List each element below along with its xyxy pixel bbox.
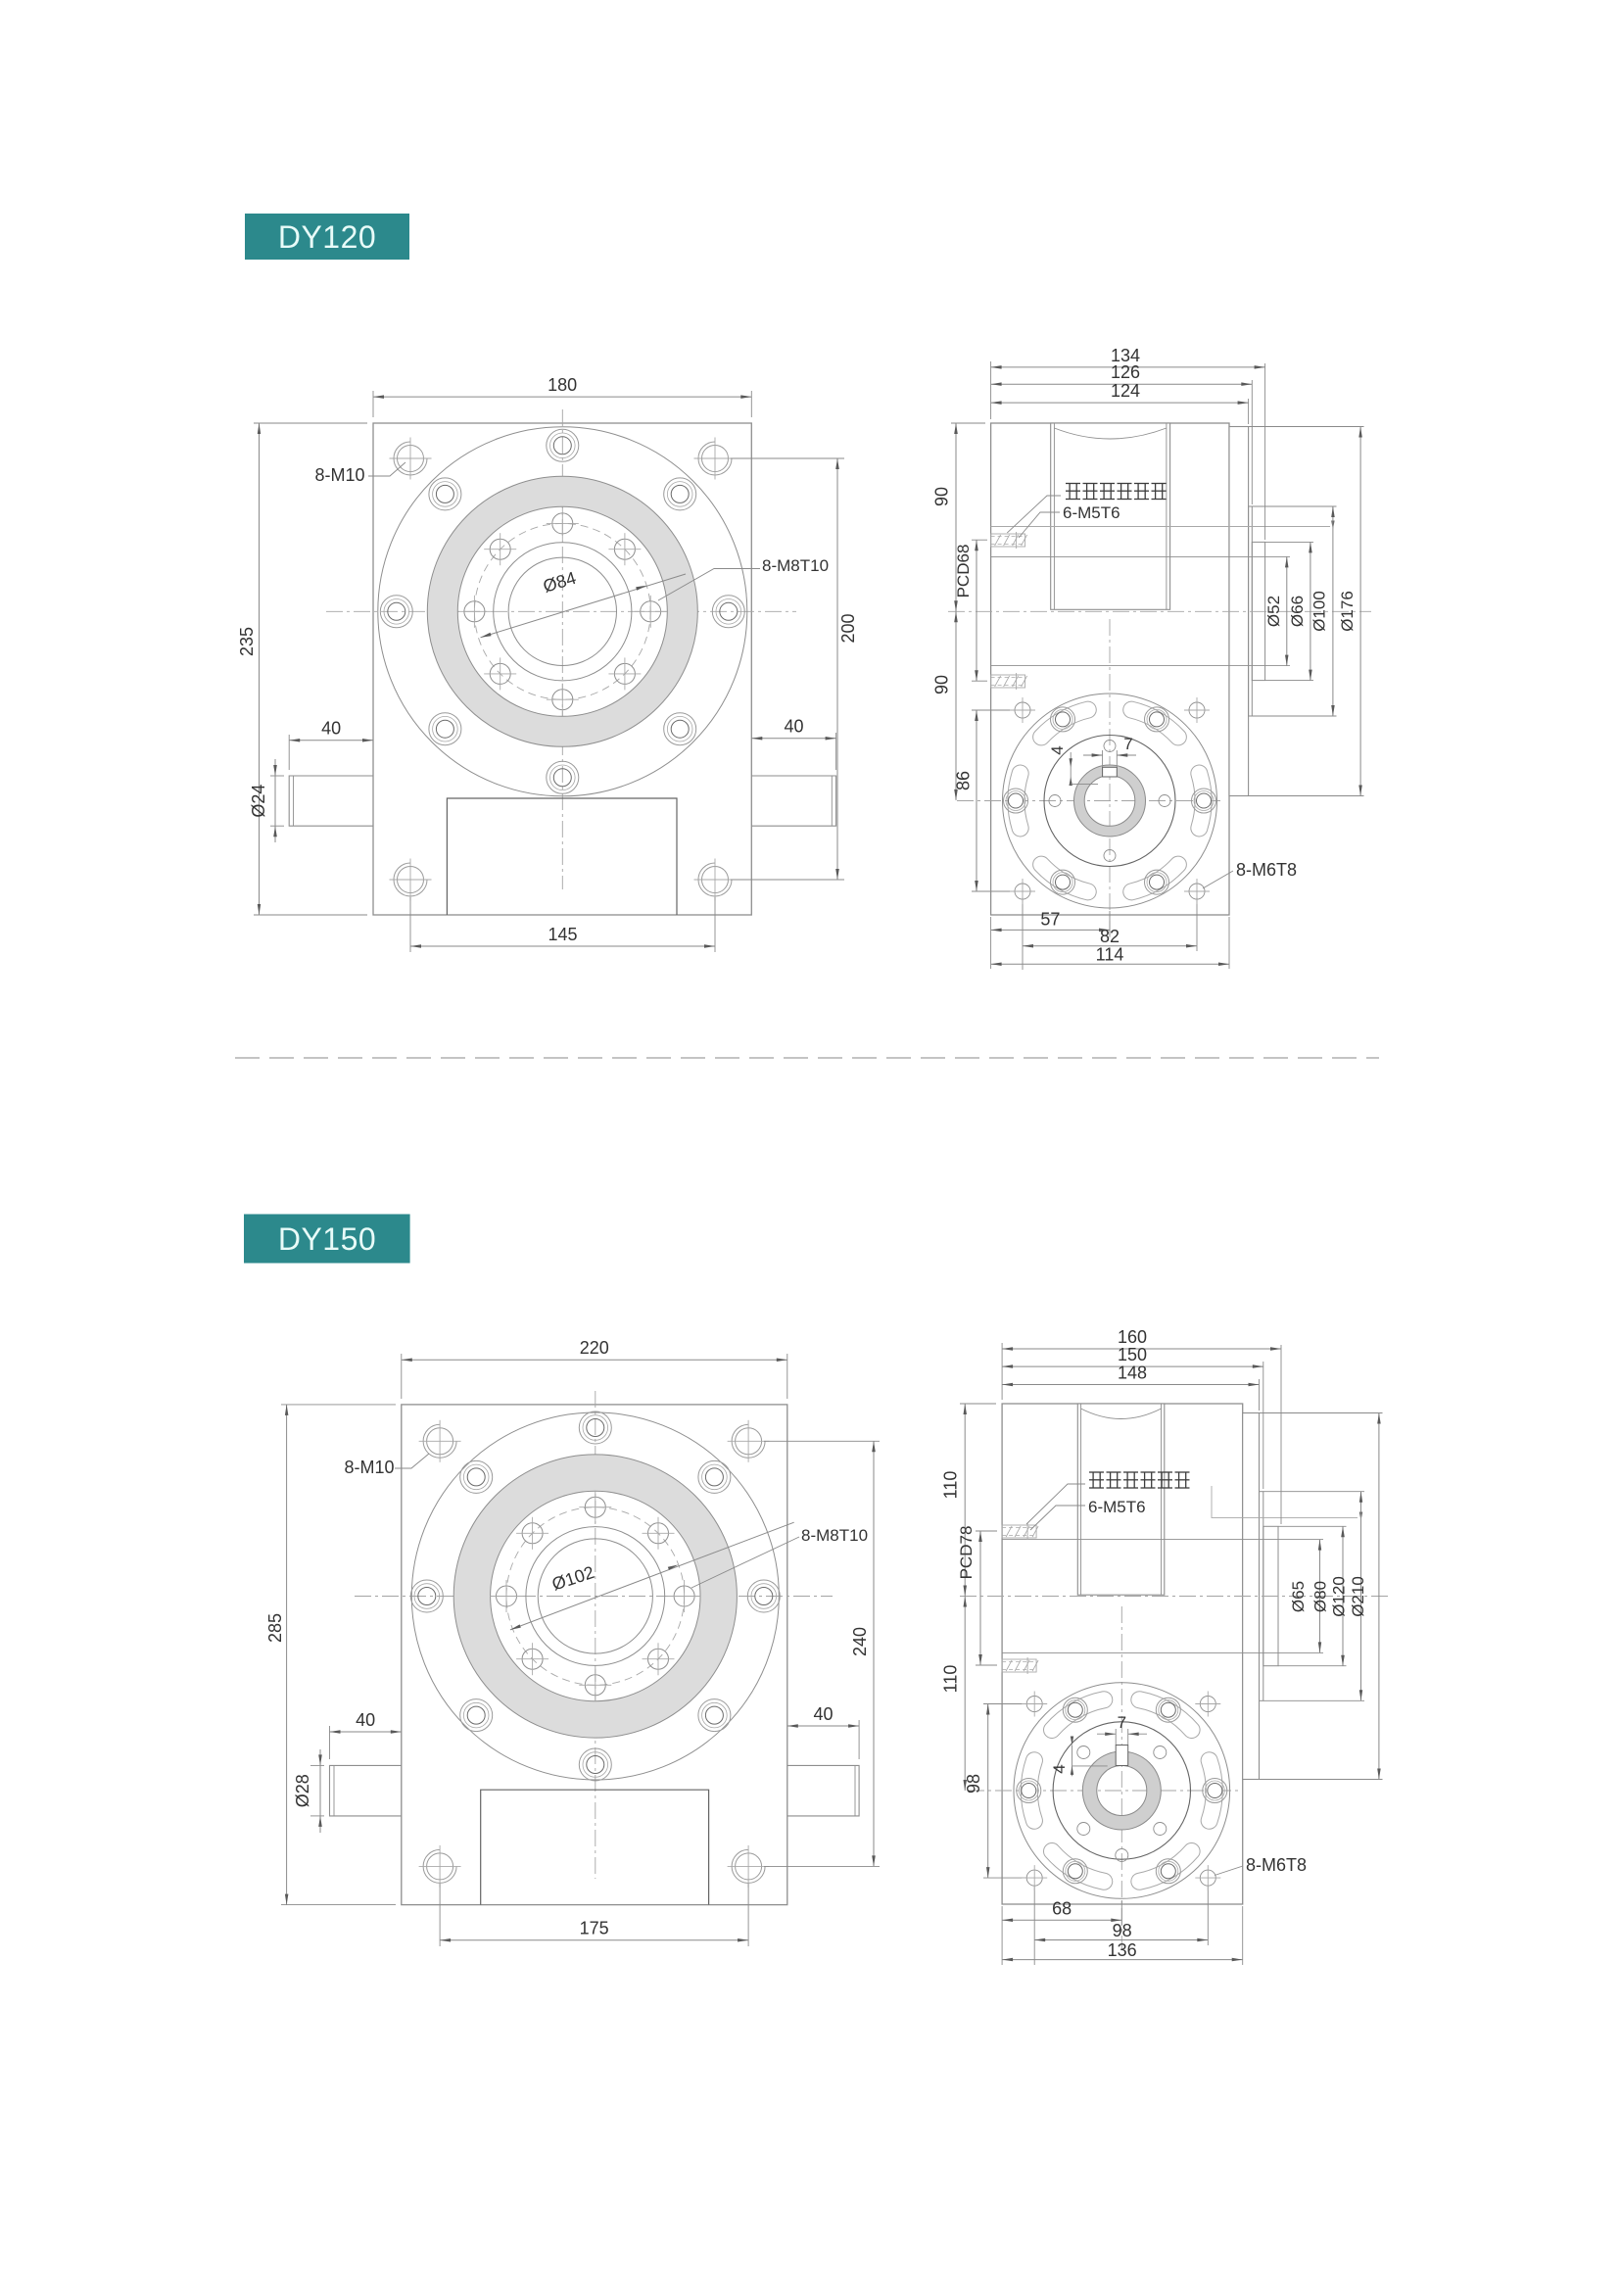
svg-text:Ø24: Ø24 [249,785,268,818]
svg-text:110: 110 [941,1471,961,1500]
svg-text:PCD68: PCD68 [954,545,973,598]
svg-text:40: 40 [321,719,341,739]
svg-text:Ø66: Ø66 [1288,596,1307,627]
svg-text:6-M5T6: 6-M5T6 [1088,1498,1146,1516]
svg-text:40: 40 [784,717,803,737]
svg-text:DY150: DY150 [278,1221,376,1257]
svg-text:98: 98 [964,1774,983,1794]
svg-text:200: 200 [838,613,858,643]
svg-text:145: 145 [548,925,577,944]
svg-text:40: 40 [356,1710,375,1730]
svg-text:Ø120: Ø120 [1329,1576,1348,1617]
svg-text:Ø28: Ø28 [293,1774,312,1807]
svg-text:40: 40 [813,1704,833,1724]
svg-text:98: 98 [1113,1921,1132,1940]
svg-text:8-M10: 8-M10 [344,1458,394,1477]
svg-text:68: 68 [1052,1899,1072,1919]
svg-text:126: 126 [1111,362,1140,382]
svg-text:124: 124 [1111,381,1140,401]
svg-text:90: 90 [932,487,952,506]
svg-text:Ø52: Ø52 [1264,596,1283,627]
svg-text:PCD78: PCD78 [957,1526,976,1580]
svg-text:180: 180 [548,375,577,395]
svg-text:175: 175 [580,1919,609,1938]
svg-text:240: 240 [850,1627,870,1656]
svg-text:114: 114 [1096,945,1124,965]
svg-text:8-M6T8: 8-M6T8 [1236,860,1297,880]
svg-text:160: 160 [1118,1327,1147,1347]
svg-text:4: 4 [1050,1764,1069,1773]
svg-text:86: 86 [954,771,974,790]
svg-text:220: 220 [580,1338,609,1358]
svg-text:8-M6T8: 8-M6T8 [1246,1855,1307,1875]
svg-text:Ø176: Ø176 [1338,591,1357,632]
svg-text:Ø210: Ø210 [1349,1576,1367,1617]
svg-text:Ø65: Ø65 [1289,1581,1308,1612]
svg-text:8-M8T10: 8-M8T10 [762,556,829,575]
svg-text:235: 235 [237,627,257,656]
svg-text:148: 148 [1118,1363,1147,1383]
svg-text:90: 90 [932,675,952,694]
svg-text:8-M8T10: 8-M8T10 [801,1526,868,1545]
svg-text:6-M5T6: 6-M5T6 [1063,503,1120,522]
svg-text:285: 285 [265,1613,285,1643]
svg-text:DY120: DY120 [278,219,376,255]
svg-text:Ø80: Ø80 [1311,1581,1330,1612]
svg-text:7: 7 [1123,735,1132,753]
svg-text:57: 57 [1040,910,1060,930]
svg-text:82: 82 [1100,927,1120,946]
svg-text:110: 110 [941,1665,961,1694]
svg-text:150: 150 [1118,1345,1147,1364]
svg-text:4: 4 [1048,745,1067,754]
svg-text:Ø100: Ø100 [1310,591,1329,632]
svg-text:7: 7 [1118,1713,1126,1732]
svg-text:136: 136 [1108,1940,1137,1960]
svg-text:8-M10: 8-M10 [314,465,364,485]
